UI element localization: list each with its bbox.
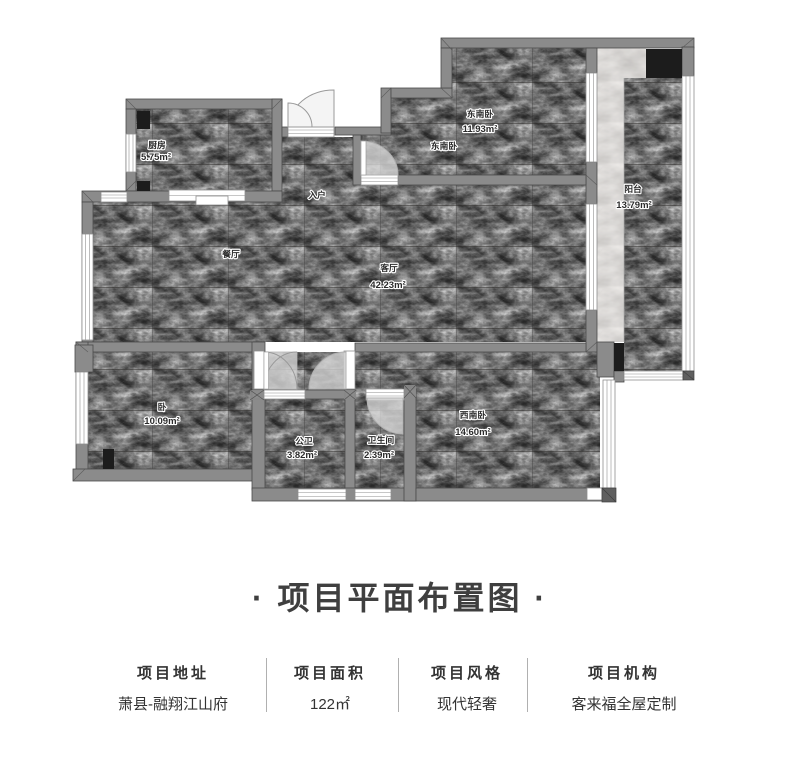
svg-text:餐厅: 餐厅 [221,248,240,259]
svg-text:14.60m²: 14.60m² [455,427,490,438]
svg-text:3.82m²: 3.82m² [287,450,317,461]
svg-text:10.09m²: 10.09m² [144,416,179,427]
svg-text:13.79m²: 13.79m² [616,200,651,211]
svg-text:2.39m²: 2.39m² [364,450,394,461]
svg-text:东南卧: 东南卧 [467,108,494,119]
svg-text:入户: 入户 [308,189,326,200]
svg-text:公卫: 公卫 [295,436,313,446]
svg-text:西南卧: 西南卧 [460,409,487,420]
svg-text:阳台: 阳台 [624,183,642,194]
svg-text:42.23m²: 42.23m² [370,280,405,291]
svg-text:卫生间: 卫生间 [368,434,395,445]
svg-text:厨房: 厨房 [148,139,166,150]
svg-text:卧: 卧 [158,401,167,412]
svg-text:11.93m²: 11.93m² [463,124,498,135]
svg-text:东南卧: 东南卧 [431,140,458,151]
svg-text:5.75m²: 5.75m² [141,152,171,163]
svg-text:客厅: 客厅 [379,262,398,273]
